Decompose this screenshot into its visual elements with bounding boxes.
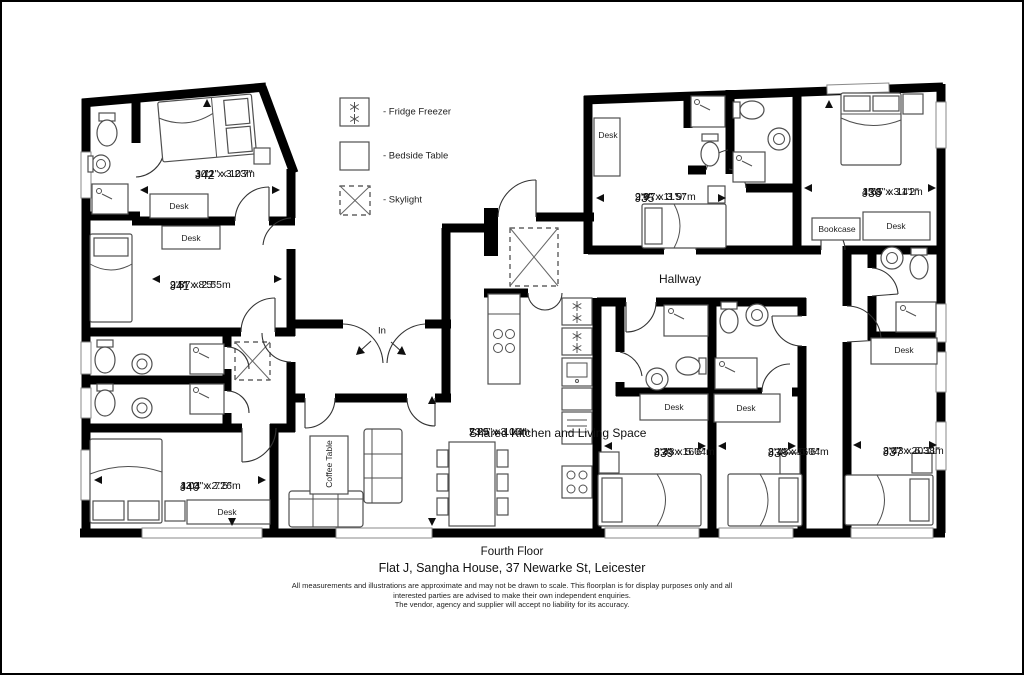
shower-icon (190, 384, 224, 414)
bed-double (598, 474, 701, 526)
desk-label: Desk (169, 201, 188, 211)
bedside-table-icon (708, 186, 725, 203)
toilet-icon (720, 302, 738, 333)
kitchen-sink-icon (562, 358, 592, 386)
fridge-freezer-icon (562, 328, 592, 355)
toilet-icon (676, 357, 706, 375)
sofa (289, 491, 363, 527)
kitchen-counter (488, 294, 520, 384)
sink-icon (88, 155, 110, 173)
room-dimensions-imperial: 15'3" x 11'2" (862, 186, 919, 199)
desk-label: Desk (217, 507, 236, 517)
desk-label: Desk (736, 403, 755, 413)
sink-icon (881, 247, 903, 269)
bed-double (845, 475, 933, 525)
room-dimensions-imperial: 8'1" x 16'6" (768, 446, 820, 459)
bedside-table-icon (903, 94, 923, 114)
sink-icon (132, 398, 152, 418)
floor-title: Fourth Floor (2, 546, 1022, 558)
desk-label: Desk (598, 130, 617, 140)
room-dimensions-imperial: 13'3" x 7'5" (180, 480, 232, 493)
sink-icon (132, 354, 152, 374)
coffee-table-label: Coffee Table (324, 440, 334, 487)
room-dimensions-imperial: 8'2" x 16'6" (654, 446, 706, 459)
toilet-icon (701, 134, 719, 166)
disclaimer-line-1: All measurements and illustrations are a… (2, 581, 1022, 591)
desk-icon (594, 118, 620, 176)
shower-icon (190, 344, 224, 374)
dining-table (437, 442, 508, 526)
floorplan-canvas: Hallway In J423.11 x 3.23m10'2" x 10'7"J… (0, 0, 1024, 675)
bed-single (642, 204, 726, 248)
fridge-freezer-icon (562, 298, 592, 325)
disclaimer: All measurements and illustrations are a… (2, 581, 1022, 610)
shower-icon (896, 302, 936, 332)
desk-label: Desk (886, 221, 905, 231)
bed-single (90, 234, 132, 322)
legend-skylight-label: - Skylight (383, 195, 422, 206)
shower-icon (733, 152, 765, 182)
bed-double (728, 474, 802, 526)
legend-symbols (340, 98, 370, 215)
toilet-icon (95, 340, 115, 373)
bookcase-label: Bookcase (818, 224, 855, 234)
desk-label: Desk (181, 233, 200, 243)
disclaimer-line-2: interested parties are advised to make t… (2, 591, 1022, 601)
shower-icon (691, 96, 725, 127)
hob-icon (562, 466, 592, 498)
room-dimensions-imperial: 8'0" x 20'11" (883, 445, 940, 458)
bedside-table-symbol (340, 142, 369, 170)
toilet-icon (733, 101, 764, 119)
sink-icon (768, 128, 790, 150)
bed-double (841, 93, 901, 165)
furniture (88, 93, 937, 527)
disclaimer-line-3: The vendor, agency and supplier will acc… (2, 600, 1022, 610)
entrance-in-label: In (378, 326, 386, 337)
room-dimensions-imperial: 10'2" x 10'7" (195, 168, 253, 181)
legend-fridge-freezer-label: - Fridge Freezer (383, 107, 451, 118)
bedside-table-icon (599, 452, 619, 473)
shower-icon (92, 184, 128, 214)
toilet-icon (97, 113, 117, 146)
room-dimensions-imperial: 23'9" x 10'4" (469, 426, 527, 439)
toilet-icon (910, 248, 928, 279)
hallway-label: Hallway (659, 272, 701, 286)
room-dimensions-imperial: 9'9" x 11'9" (635, 191, 686, 204)
room-dimensions-imperial: 9'5" x 8'5" (170, 279, 216, 292)
address-title: Flat J, Sangha House, 37 Newarke St, Lei… (2, 561, 1022, 575)
desk-label: Desk (664, 402, 683, 412)
legend-bedside-table-label: - Bedside Table (383, 151, 448, 162)
kitchen-counter (562, 388, 592, 410)
bedside-table-icon (165, 501, 185, 521)
sink-icon (746, 304, 768, 326)
toilet-icon (95, 384, 115, 416)
sink-icon (646, 368, 668, 390)
bedside-table-icon (254, 148, 270, 164)
desk-label: Desk (894, 345, 913, 355)
shower-icon (664, 305, 708, 336)
sofa (364, 429, 402, 503)
fridge-freezer-symbol (340, 98, 369, 126)
skylight-symbol (340, 186, 370, 215)
shower-icon (715, 358, 757, 389)
